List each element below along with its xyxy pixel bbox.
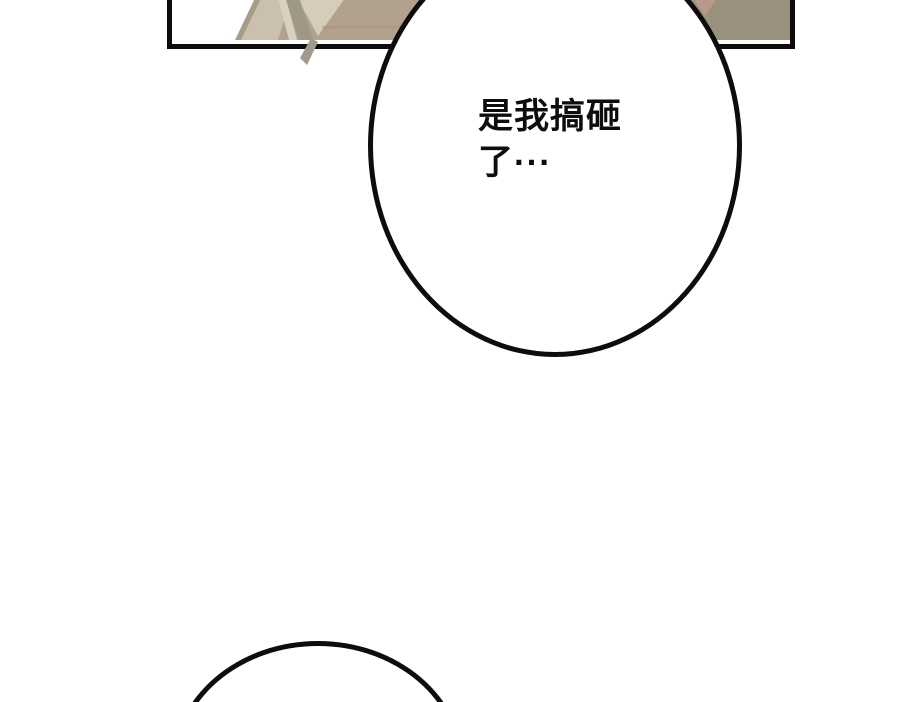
comic-page: 是我搞砸 了··· — [0, 0, 900, 702]
speech-bubble-bottom-partial — [172, 641, 464, 702]
speech-bubble-text: 是我搞砸 了··· — [478, 94, 678, 186]
speech-bubble-main: 是我搞砸 了··· — [368, 0, 742, 357]
